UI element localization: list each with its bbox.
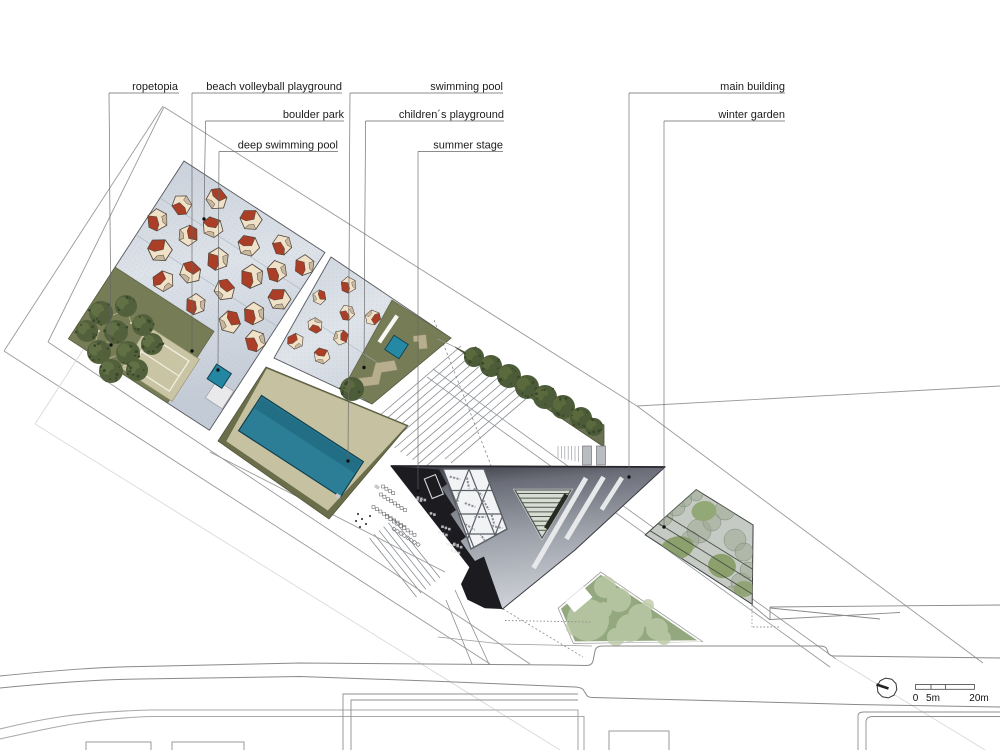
svg-text:beach volleyball playground: beach volleyball playground xyxy=(206,81,342,93)
svg-text:20m: 20m xyxy=(969,693,988,704)
svg-text:ropetopia: ropetopia xyxy=(132,81,179,93)
svg-text:children´s playground: children´s playground xyxy=(399,109,504,121)
svg-text:boulder park: boulder park xyxy=(283,109,345,121)
svg-text:summer stage: summer stage xyxy=(433,140,503,152)
svg-text:deep swimming pool: deep swimming pool xyxy=(238,140,338,152)
svg-text:swimming pool: swimming pool xyxy=(430,81,503,93)
svg-text:main building: main building xyxy=(720,81,785,93)
svg-text:winter garden: winter garden xyxy=(717,109,785,121)
svg-text:5m: 5m xyxy=(926,693,940,704)
svg-text:0: 0 xyxy=(913,693,919,704)
